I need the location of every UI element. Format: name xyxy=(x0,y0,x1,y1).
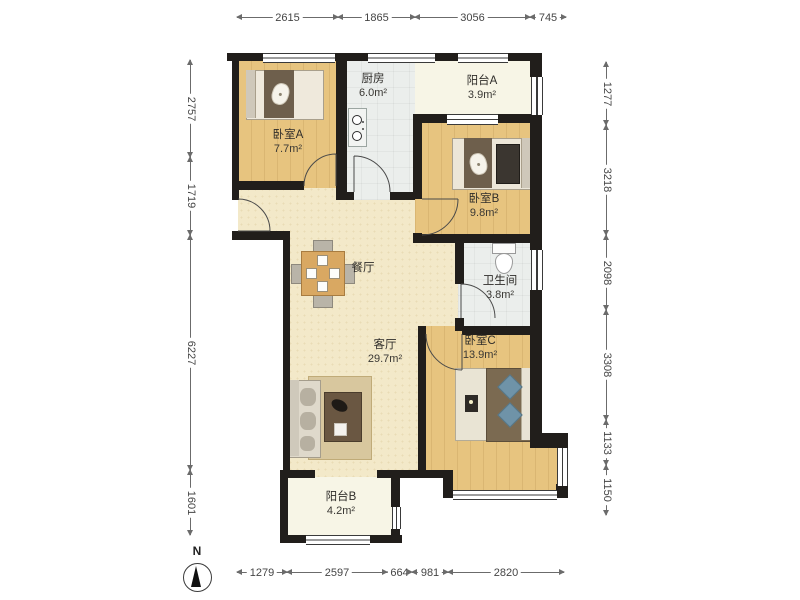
dimension-bottom: 981 xyxy=(412,572,448,573)
dimension-right: 1277 xyxy=(606,62,607,125)
wall xyxy=(455,242,464,284)
wall xyxy=(232,53,239,200)
dimension-bottom: 664 xyxy=(387,572,412,573)
toilet-icon xyxy=(492,243,514,274)
room-label-bedroom-c: 卧室C13.9m² xyxy=(463,334,497,362)
stove-icon xyxy=(348,108,367,147)
wall xyxy=(530,433,568,448)
wall xyxy=(391,470,400,507)
compass-north-label: N xyxy=(193,544,202,558)
wall xyxy=(232,181,304,190)
wall xyxy=(530,290,542,440)
wall xyxy=(413,234,536,243)
window xyxy=(392,507,401,529)
wall xyxy=(280,535,306,543)
wall xyxy=(336,192,354,200)
room-label-kitchen: 厨房6.0m² xyxy=(359,72,387,100)
dimension-right: 1150 xyxy=(606,465,607,515)
wall xyxy=(391,529,400,543)
bedroom-b-bed xyxy=(452,138,530,188)
dimension-right: 2098 xyxy=(606,235,607,310)
dimension-top: 1865 xyxy=(338,17,415,18)
floor-plan: 卧室A7.7m² 厨房6.0m² 阳台A3.9m² 卧室B9.8m² 餐厅 卫生… xyxy=(0,0,800,600)
window xyxy=(453,490,557,500)
room-label-bedroom-b: 卧室B9.8m² xyxy=(469,192,500,220)
wall xyxy=(556,484,568,498)
bedroom-c-bed xyxy=(455,368,530,440)
dimension-bottom: 2820 xyxy=(448,572,564,573)
room-label-bathroom: 卫生间3.8m² xyxy=(483,274,518,302)
wall xyxy=(498,114,536,123)
dimension-left: 1601 xyxy=(190,470,191,535)
dimension-left: 6227 xyxy=(190,235,191,470)
dimension-right: 3308 xyxy=(606,310,607,420)
window xyxy=(306,535,370,545)
dimension-right: 3218 xyxy=(606,125,607,235)
dimension-bottom: 1279 xyxy=(237,572,287,573)
wall xyxy=(336,53,347,193)
compass-arrow-icon xyxy=(191,566,201,587)
window xyxy=(447,114,498,125)
wall xyxy=(283,235,290,477)
wall xyxy=(435,53,458,61)
wall xyxy=(280,470,288,543)
wall xyxy=(530,115,542,250)
room-label-balcony-b: 阳台B4.2m² xyxy=(326,490,357,518)
window xyxy=(531,77,543,115)
window xyxy=(458,53,508,63)
dimension-top: 2615 xyxy=(237,17,338,18)
bedroom-a-bed xyxy=(246,70,322,118)
wall xyxy=(443,470,453,498)
dimension-top: 745 xyxy=(530,17,566,18)
wall xyxy=(232,231,290,240)
wall xyxy=(287,470,315,478)
dimension-left: 2757 xyxy=(190,60,191,157)
room-label-bedroom-a: 卧室A7.7m² xyxy=(273,128,304,156)
dimension-top: 3056 xyxy=(415,17,530,18)
dimension-right: 1133 xyxy=(606,420,607,465)
wall xyxy=(413,114,422,199)
window xyxy=(368,53,435,63)
wall xyxy=(390,192,415,200)
wall xyxy=(530,53,542,77)
dimension-bottom: 2597 xyxy=(287,572,387,573)
room-label-dining: 餐厅 xyxy=(352,261,375,275)
window xyxy=(557,448,568,486)
room-label-living: 客厅29.7m² xyxy=(368,338,402,366)
dimension-left: 1719 xyxy=(190,157,191,235)
window xyxy=(263,53,335,63)
window xyxy=(531,250,543,290)
wall xyxy=(418,326,426,477)
room-label-balcony-a: 阳台A3.9m² xyxy=(467,74,498,102)
